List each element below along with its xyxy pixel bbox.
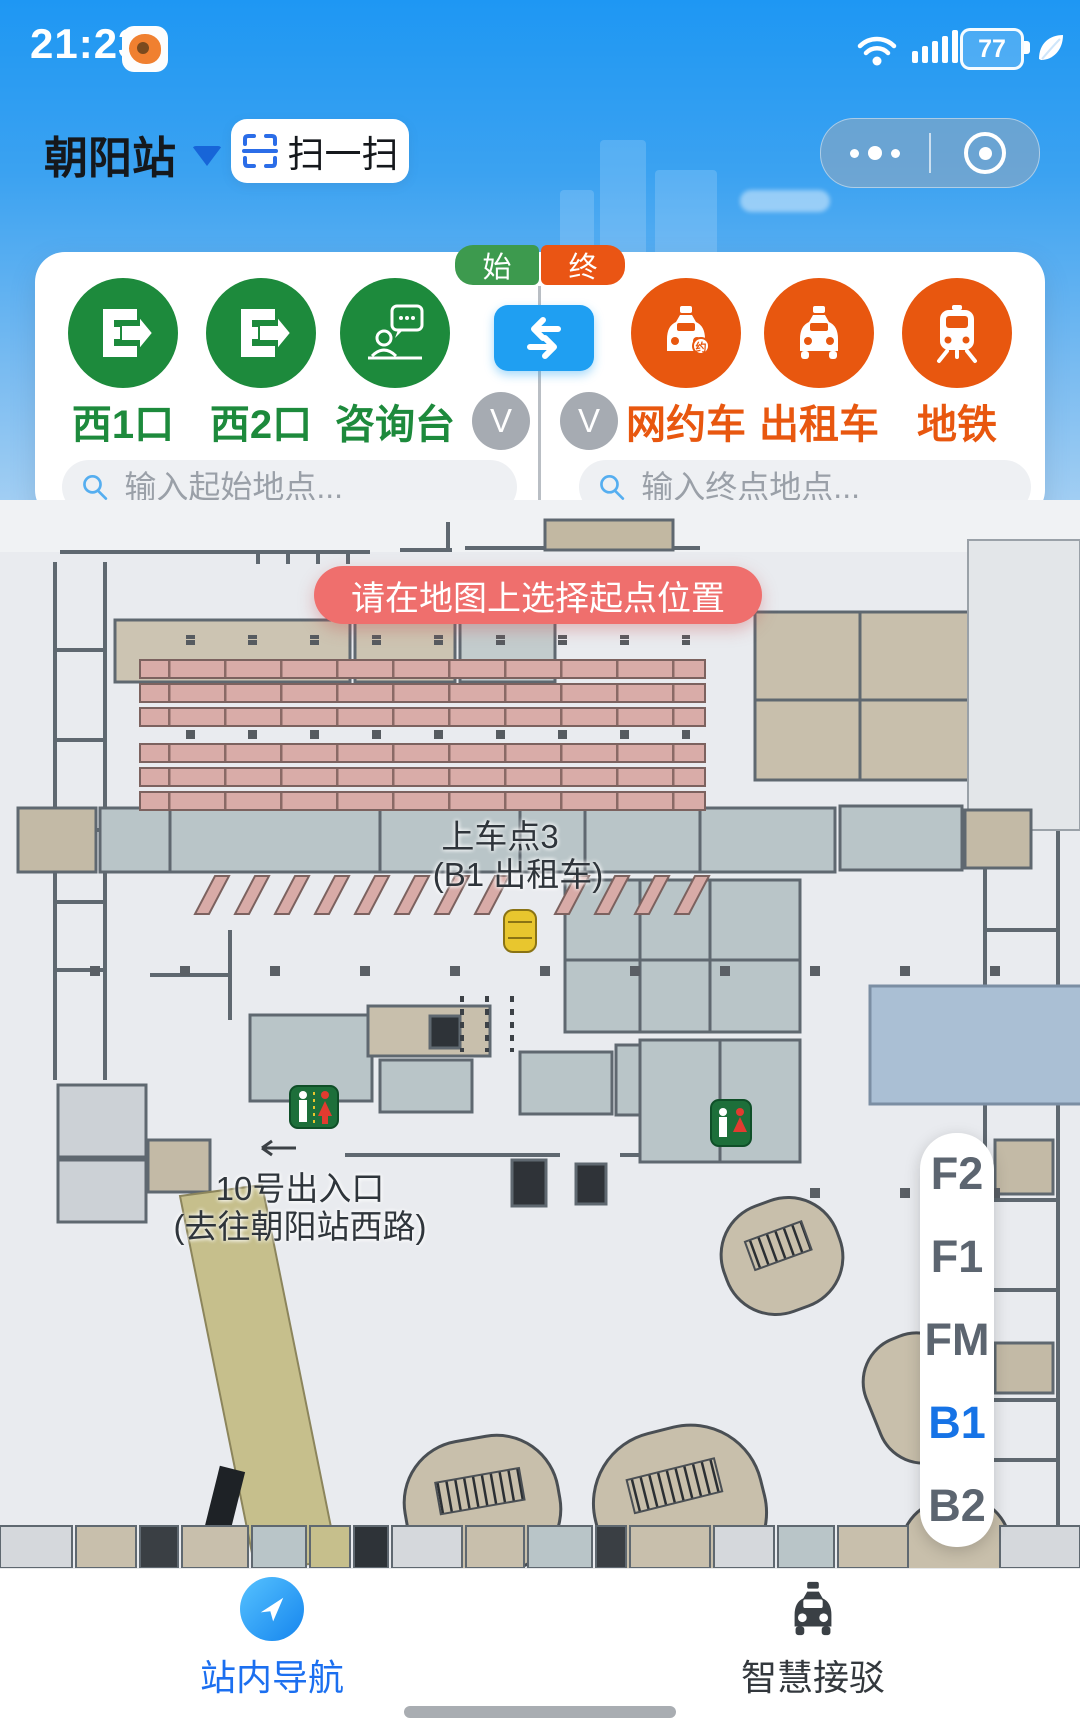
exit-icon [91, 301, 155, 365]
swap-button[interactable] [494, 305, 594, 371]
shortcut-ride-hailing[interactable]: 约 [631, 278, 741, 388]
taxi-icon [787, 301, 851, 365]
exit-label-line1: 10号出入口 [170, 1170, 430, 1208]
select-start-toast: 请在地图上选择起点位置 [314, 566, 762, 624]
signal-icon [912, 30, 958, 63]
app-notification-icon [122, 26, 168, 72]
shortcut-info-desk[interactable] [340, 278, 450, 388]
wifi-icon [856, 32, 898, 68]
shortcut-label[interactable]: 西2口 [186, 392, 336, 450]
shortcut-west-exit-2[interactable] [206, 278, 316, 388]
pickup-point-sublabel: (B1 出租车) [398, 856, 638, 894]
shortcut-taxi[interactable] [764, 278, 874, 388]
end-tag: 终 [541, 245, 625, 285]
exit-label-line2: (去往朝阳站西路) [170, 1208, 430, 1246]
start-tag: 始 [455, 245, 539, 285]
floor-item-b2[interactable]: B2 [920, 1464, 994, 1547]
more-menu-button[interactable] [821, 146, 929, 160]
tab-label: 智慧接驳 [741, 1649, 885, 1701]
floor-item-f2[interactable]: F2 [920, 1133, 994, 1216]
shuttle-taxi-icon [781, 1577, 845, 1641]
station-title[interactable]: 朝阳站 [44, 122, 176, 186]
close-miniprogram-button[interactable] [931, 132, 1039, 174]
exit-label: 10号出入口 (去往朝阳站西路) [170, 1170, 430, 1246]
shortcut-metro[interactable] [902, 278, 1012, 388]
shortcut-label[interactable]: 网约车 [611, 392, 761, 450]
battery-icon: 77 [960, 28, 1024, 70]
floor-item-f1[interactable]: F1 [920, 1216, 994, 1299]
app-screen: 21:23 77 朝阳站 扫一扫 [0, 0, 1080, 1734]
circle-dot-icon [964, 132, 1006, 174]
search-icon [80, 470, 110, 504]
taxi-marker-icon [504, 910, 536, 952]
exit-icon [229, 301, 293, 365]
svg-text:约: 约 [696, 340, 707, 354]
swap-icon [518, 317, 570, 359]
pickup-point-label: 上车点3 [400, 818, 600, 856]
shortcut-label[interactable]: 西1口 [48, 392, 198, 450]
search-icon [597, 470, 627, 504]
cloud [740, 190, 830, 212]
floor-item-b1[interactable]: B1 [920, 1381, 994, 1464]
metro-train-icon [925, 301, 989, 365]
shortcut-label[interactable]: 地铁 [882, 392, 1032, 450]
scan-icon [242, 133, 278, 169]
collapse-end-button[interactable]: V [560, 392, 618, 450]
tab-smart-shuttle[interactable]: 智慧接驳 [663, 1569, 963, 1701]
power-save-leaf-icon [1036, 32, 1066, 64]
station-dropdown-caret-icon[interactable] [192, 146, 222, 166]
floor-selector: F2 F1 FM B1 B2 [920, 1133, 994, 1547]
collapse-start-button[interactable]: V [472, 392, 530, 450]
shortcut-west-exit-1[interactable] [68, 278, 178, 388]
tab-label: 站内导航 [200, 1649, 344, 1701]
battery-percent: 77 [978, 35, 1006, 64]
shortcut-label[interactable]: 咨询台 [320, 392, 470, 450]
indoor-map[interactable] [0, 500, 1080, 1568]
shortcut-label[interactable]: 出租车 [744, 392, 894, 450]
ride-hailing-car-icon: 约 [654, 301, 718, 365]
home-indicator[interactable] [404, 1706, 676, 1718]
scan-button[interactable]: 扫一扫 [231, 119, 409, 183]
facility-icon [711, 1100, 751, 1146]
scan-label: 扫一扫 [288, 124, 399, 178]
miniprogram-capsule [820, 118, 1040, 188]
floor-item-fm[interactable]: FM [920, 1299, 994, 1382]
toilet-icon [290, 1086, 338, 1128]
tab-indoor-navigation[interactable]: 站内导航 [122, 1569, 422, 1701]
info-desk-icon [362, 300, 428, 366]
navigation-arrow-icon [240, 1577, 304, 1641]
